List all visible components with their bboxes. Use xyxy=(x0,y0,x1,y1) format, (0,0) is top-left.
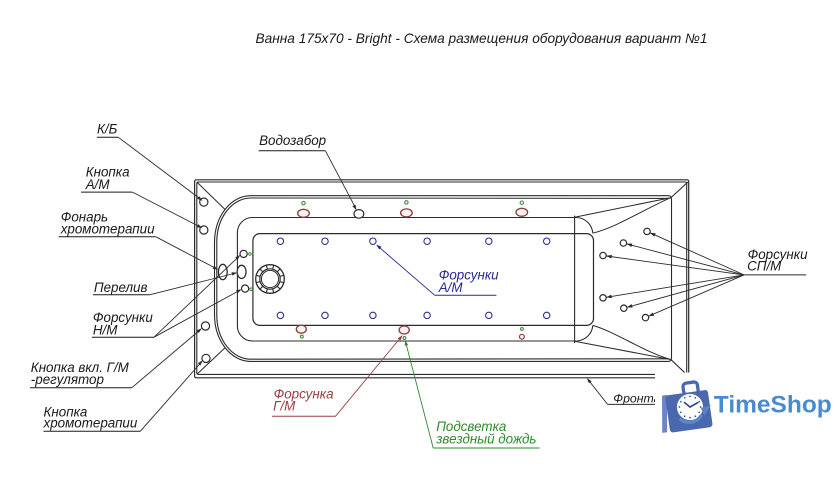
svg-text:Н/М: Н/М xyxy=(93,323,118,338)
svg-text:хромотерапии: хромотерапии xyxy=(43,416,138,431)
svg-text:TimeShop: TimeShop xyxy=(714,392,832,419)
svg-text:Ванна 175х70 - Bright - Схема: Ванна 175х70 - Bright - Схема размещения… xyxy=(256,31,708,46)
svg-text:А/М: А/М xyxy=(438,280,464,295)
svg-text:А/М: А/М xyxy=(85,177,111,192)
svg-text:Водозабор: Водозабор xyxy=(259,133,327,148)
svg-text:-регулятор: -регулятор xyxy=(31,372,105,387)
svg-text:звездный дождь: звездный дождь xyxy=(435,432,536,447)
svg-text:Г/М: Г/М xyxy=(273,399,296,414)
svg-text:хромотерапии: хромотерапии xyxy=(60,221,155,236)
svg-text:Перелив: Перелив xyxy=(94,280,148,295)
svg-text:СП/М: СП/М xyxy=(747,259,782,274)
svg-text:К/Б: К/Б xyxy=(97,122,118,137)
